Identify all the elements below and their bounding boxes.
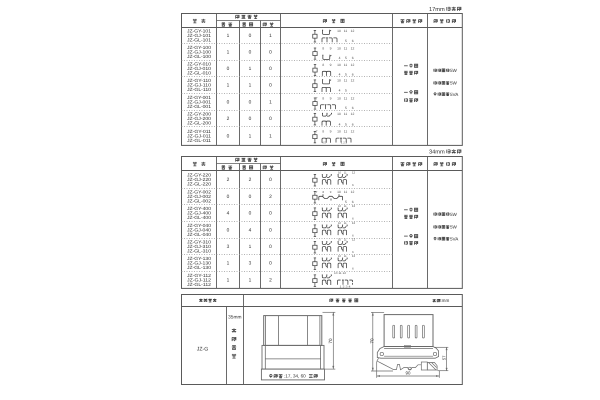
svg-text::mm: :mm [440,298,449,303]
svg-text:3: 3 [227,244,230,250]
svg-text:5: 5 [345,39,347,43]
svg-text:5W: 5W [450,212,458,217]
svg-text:11: 11 [344,78,348,82]
svg-text:0: 0 [249,211,252,217]
svg-text:1 2 3: 1 2 3 [341,141,347,144]
svg-text:0: 0 [269,83,272,89]
svg-text:0: 0 [269,211,272,217]
svg-text:10: 10 [338,205,341,208]
svg-text:JZ-GL-110: JZ-GL-110 [187,87,212,92]
svg-text:12: 12 [351,190,355,194]
svg-text:4 5: 4 5 [322,141,326,144]
svg-text:1: 1 [249,66,252,72]
svg-text:11: 11 [344,63,348,67]
svg-text:4: 4 [339,122,341,126]
svg-text:0: 0 [227,134,230,140]
svg-text:35mm: 35mm [228,314,241,320]
svg-text:9: 9 [330,130,332,134]
svg-text:10: 10 [337,63,341,67]
svg-text:JZ-GL-310: JZ-GL-310 [187,249,212,254]
svg-text:12: 12 [351,63,355,67]
svg-text:6: 6 [352,106,354,110]
svg-text:6: 6 [352,56,354,60]
svg-text:1: 1 [249,278,252,284]
svg-text:0: 0 [249,100,252,106]
svg-text:0: 0 [227,228,230,234]
svg-text:10: 10 [337,29,341,33]
svg-text:5: 5 [345,89,347,93]
svg-text:1: 1 [227,33,230,39]
svg-text:70: 70 [370,338,375,344]
svg-text:1: 1 [269,100,272,106]
svg-text:1: 1 [249,244,252,250]
svg-text:57: 57 [441,355,446,360]
svg-text:0: 0 [249,116,252,122]
svg-text:11: 11 [344,222,347,225]
svg-text:5: 5 [345,106,347,110]
svg-text:70: 70 [328,338,333,344]
svg-text:0: 0 [249,33,252,39]
svg-text:JZ-GL-112: JZ-GL-112 [187,282,212,287]
svg-text:0: 0 [227,194,230,200]
svg-text:8: 8 [322,46,324,50]
svg-text:0: 0 [249,50,252,56]
svg-text:0: 0 [269,66,272,72]
svg-text:5W: 5W [450,68,458,73]
svg-text:9: 9 [330,96,332,100]
svg-text:4: 4 [249,228,252,234]
svg-text:11: 11 [344,112,348,116]
svg-text:5: 5 [345,122,347,126]
svg-text:12: 12 [352,221,356,225]
svg-text:11: 11 [344,130,348,134]
svg-text:4: 4 [339,73,341,77]
svg-text:0: 0 [249,194,252,200]
svg-text:JZ-GL-002: JZ-GL-002 [187,199,212,204]
svg-text:1 2 3 4: 1 2 3 4 [340,285,352,288]
svg-text:4: 4 [339,89,341,93]
svg-text:11: 11 [344,238,347,241]
svg-text:12: 12 [351,130,355,134]
svg-text:1: 1 [249,83,252,89]
svg-text:12: 12 [352,171,356,175]
svg-text:2: 2 [269,278,272,284]
svg-text:10: 10 [338,222,341,225]
svg-text:2: 2 [269,194,272,200]
svg-text:11: 11 [344,46,348,50]
svg-text:8: 8 [322,130,324,134]
svg-text:4: 4 [227,211,230,217]
svg-text:11: 11 [344,29,348,33]
svg-text:6: 6 [352,122,354,126]
svg-text:10: 10 [338,238,341,241]
svg-text:10: 10 [338,171,341,174]
svg-text:10: 10 [337,46,341,50]
svg-text:2: 2 [227,177,230,183]
svg-text:0: 0 [269,177,272,183]
svg-text:1: 1 [227,50,230,56]
svg-text:2: 2 [249,177,252,183]
svg-text:5VA: 5VA [450,236,459,241]
svg-text:12: 12 [351,78,355,82]
svg-text:10: 10 [337,190,341,194]
svg-text:12: 12 [351,46,355,50]
svg-text:5VA: 5VA [450,92,459,97]
svg-text:1: 1 [227,278,230,284]
svg-text:10: 10 [337,96,341,100]
svg-text:8: 8 [322,96,324,100]
svg-text:10: 10 [337,78,341,82]
svg-text:6: 6 [352,73,354,77]
svg-text:JZ-GL-400: JZ-GL-400 [187,215,212,220]
svg-text:1: 1 [227,261,230,267]
svg-text:9: 9 [330,46,332,50]
svg-text:1: 1 [227,83,230,89]
svg-text:11: 11 [344,190,348,194]
svg-text:JZ-GL-101: JZ-GL-101 [187,38,212,43]
svg-text:34mm: 34mm [429,150,445,156]
svg-text:5: 5 [345,200,347,204]
svg-text:12: 12 [352,254,356,258]
svg-text:0: 0 [227,66,230,72]
svg-text:4: 4 [339,56,341,60]
svg-text:1: 1 [269,134,272,140]
svg-text:0: 0 [269,50,272,56]
svg-text:JZ-GL-220: JZ-GL-220 [187,182,212,187]
svg-text:JZ-GL-040: JZ-GL-040 [187,232,212,237]
svg-text:10: 10 [337,130,341,134]
svg-text:0: 0 [269,228,272,234]
svg-text:JZ-GL-011: JZ-GL-011 [187,138,212,143]
svg-text:8: 8 [322,63,324,67]
svg-text:10: 10 [338,255,341,258]
svg-text:11: 11 [344,255,347,258]
svg-text::17, 34, 60: :17, 34, 60 [284,374,306,379]
svg-text:12: 12 [352,238,356,242]
svg-text:10 11 12: 10 11 12 [334,272,347,275]
svg-text:JZ-GL-001: JZ-GL-001 [187,104,212,109]
svg-text:12: 12 [352,204,356,208]
svg-text:11: 11 [344,205,347,208]
svg-text:0: 0 [227,100,230,106]
svg-text:2: 2 [227,116,230,122]
svg-text:90: 90 [406,371,411,376]
svg-text:JZ-G: JZ-G [197,346,209,352]
svg-text:12: 12 [351,112,355,116]
svg-text:10: 10 [337,112,341,116]
svg-text:7: 7 [316,130,318,134]
svg-text:JZ-GL-130: JZ-GL-130 [187,265,212,270]
svg-text:JZ-GL-010: JZ-GL-010 [187,71,212,76]
svg-text:0: 0 [269,116,272,122]
svg-text:5W: 5W [450,81,458,86]
svg-text:JZ-GL-200: JZ-GL-200 [187,121,212,126]
svg-text:1: 1 [269,33,272,39]
svg-text:9: 9 [330,63,332,67]
svg-text:1: 1 [249,134,252,140]
svg-text:0: 0 [269,244,272,250]
svg-text:11: 11 [344,171,347,174]
svg-text:17mm: 17mm [429,7,445,13]
svg-text:5: 5 [345,73,347,77]
svg-text:6: 6 [352,39,354,43]
svg-text:JZ-GL-100: JZ-GL-100 [187,54,212,59]
svg-text:5W: 5W [450,225,458,230]
svg-text:12: 12 [351,96,355,100]
svg-text:3: 3 [249,261,252,267]
svg-text:7: 7 [316,96,318,100]
svg-text:11: 11 [344,96,348,100]
svg-text:12: 12 [351,29,355,33]
svg-text:5: 5 [345,56,347,60]
svg-text:0: 0 [269,261,272,267]
